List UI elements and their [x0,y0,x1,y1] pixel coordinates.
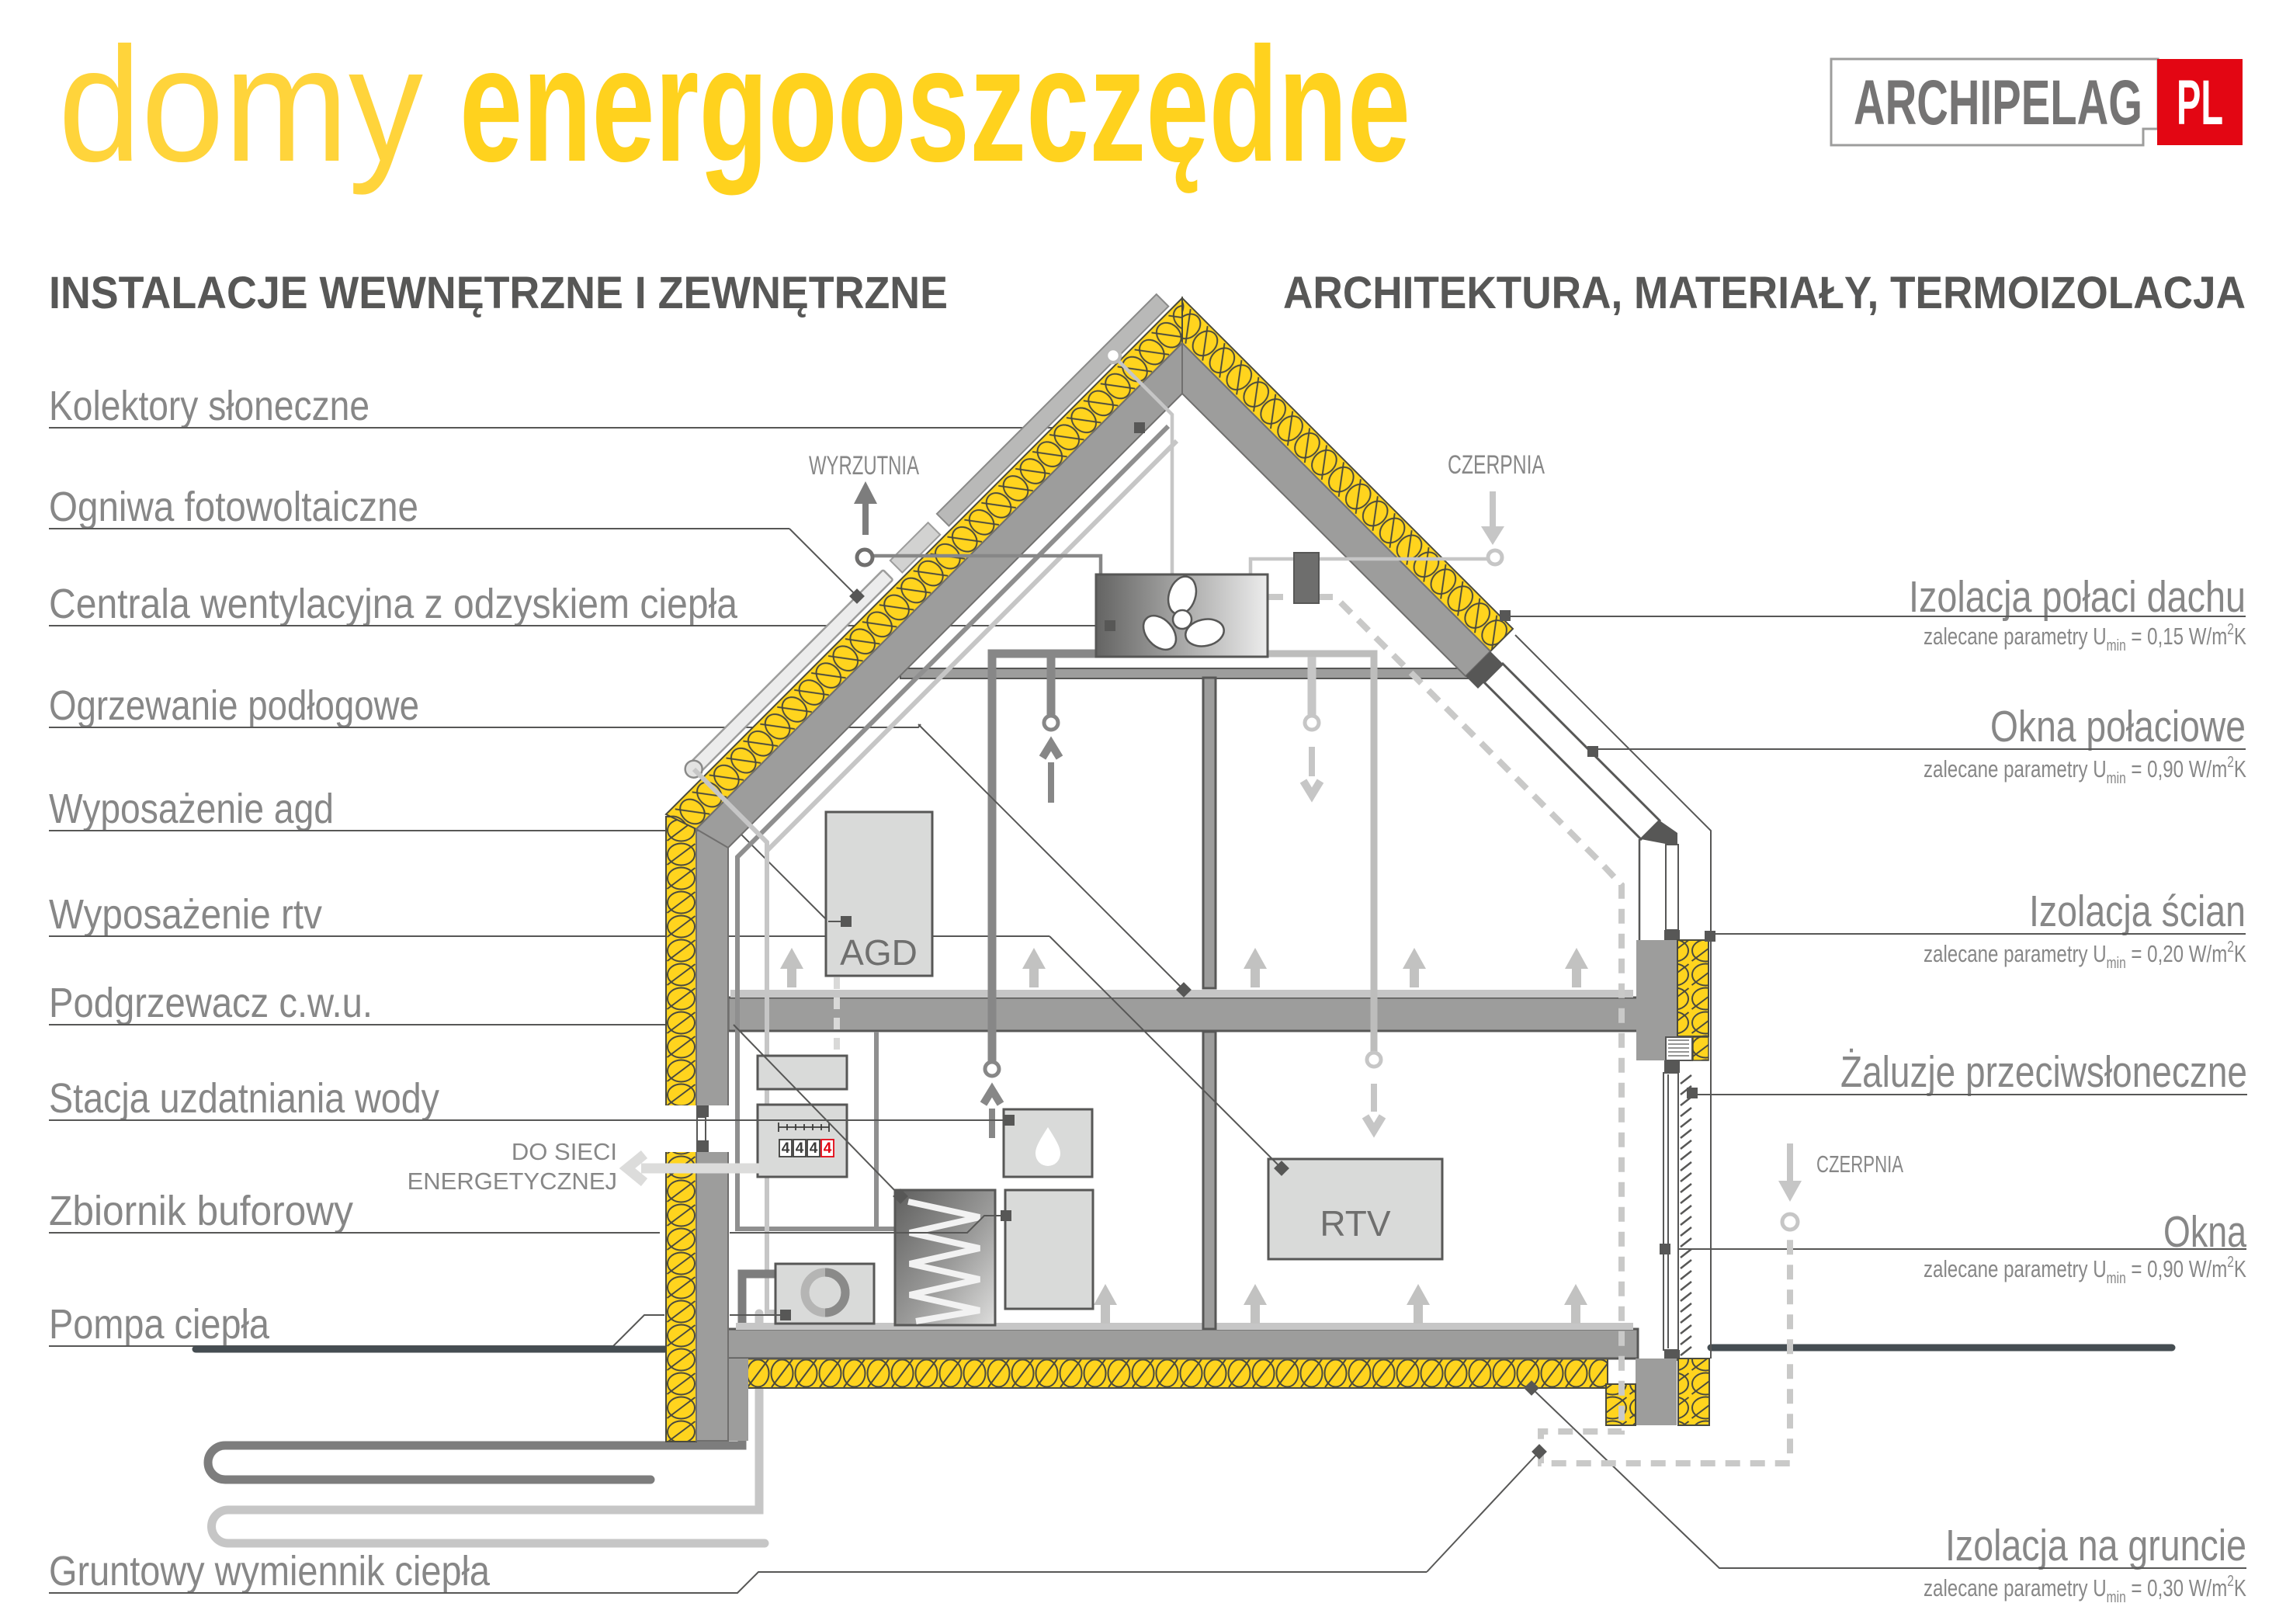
svg-text:RTV: RTV [1320,1203,1390,1244]
svg-text:domy: domy [58,13,423,196]
svg-text:Okna połaciowe: Okna połaciowe [1990,702,2246,751]
svg-text:zalecane parametry Umin = 0,20: zalecane parametry Umin = 0,20 W/m2K [1924,939,2246,972]
svg-text:Zbiornik buforowy: Zbiornik buforowy [49,1188,353,1234]
svg-text:energooszczędne: energooszczędne [460,13,1410,196]
svg-text:ARCHITEKTURA, MATERIAŁY, TERMO: ARCHITEKTURA, MATERIAŁY, TERMOIZOLACJA [1283,268,2246,318]
svg-text:Ogrzewanie podłogowe: Ogrzewanie podłogowe [49,682,419,729]
svg-text:DO SIECI: DO SIECI [512,1138,617,1165]
svg-text:4: 4 [782,1140,790,1157]
svg-text:Żaluzje przeciwsłoneczne: Żaluzje przeciwsłoneczne [1840,1047,2247,1097]
svg-text:Ogniwa fotowoltaiczne: Ogniwa fotowoltaiczne [49,484,418,530]
svg-text:Izolacja na gruncie: Izolacja na gruncie [1945,1521,2246,1570]
svg-text:zalecane parametry Umin = 0,90: zalecane parametry Umin = 0,90 W/m2K [1924,1254,2246,1287]
svg-text:INSTALACJE WEWNĘTRZNE I ZEWNĘT: INSTALACJE WEWNĘTRZNE I ZEWNĘTRZNE [49,268,948,318]
svg-text:WYRZUTNIA: WYRZUTNIA [809,451,919,481]
svg-text:4: 4 [810,1140,818,1157]
svg-text:Wyposażenie agd: Wyposażenie agd [49,786,334,832]
svg-text:CZERPNIA: CZERPNIA [1448,450,1545,480]
svg-text:Gruntowy wymiennik ciepła: Gruntowy wymiennik ciepła [49,1548,491,1595]
svg-text:Wyposażenie rtv: Wyposażenie rtv [49,891,322,938]
svg-text:Podgrzewacz c.w.u.: Podgrzewacz c.w.u. [49,980,373,1026]
svg-text:ARCHIPELAG: ARCHIPELAG [1854,68,2142,138]
svg-text:AGD: AGD [840,932,918,973]
svg-text:zalecane parametry Umin = 0,30: zalecane parametry Umin = 0,30 W/m2K [1924,1573,2246,1606]
svg-text:4: 4 [796,1140,804,1157]
svg-text:ENERGETYCZNEJ: ENERGETYCZNEJ [408,1168,617,1195]
svg-text:zalecane parametry Umin = 0,90: zalecane parametry Umin = 0,90 W/m2K [1924,754,2246,787]
svg-text:Kolektory słoneczne: Kolektory słoneczne [49,383,369,429]
svg-text:zalecane parametry Umin = 0,15: zalecane parametry Umin = 0,15 W/m2K [1924,621,2246,654]
svg-text:Izolacja połaci dachu: Izolacja połaci dachu [1909,572,2246,622]
svg-text:Centrala wentylacyjna z odzysk: Centrala wentylacyjna z odzyskiem ciepła [49,581,738,627]
svg-text:4: 4 [824,1140,832,1157]
svg-text:Stacja uzdatniania wody: Stacja uzdatniania wody [49,1075,439,1122]
svg-text:CZERPNIA: CZERPNIA [1816,1150,1903,1178]
svg-text:Izolacja ścian: Izolacja ścian [2029,887,2246,936]
svg-text:PL: PL [2177,68,2223,138]
svg-text:Pompa ciepła: Pompa ciepła [49,1301,270,1348]
